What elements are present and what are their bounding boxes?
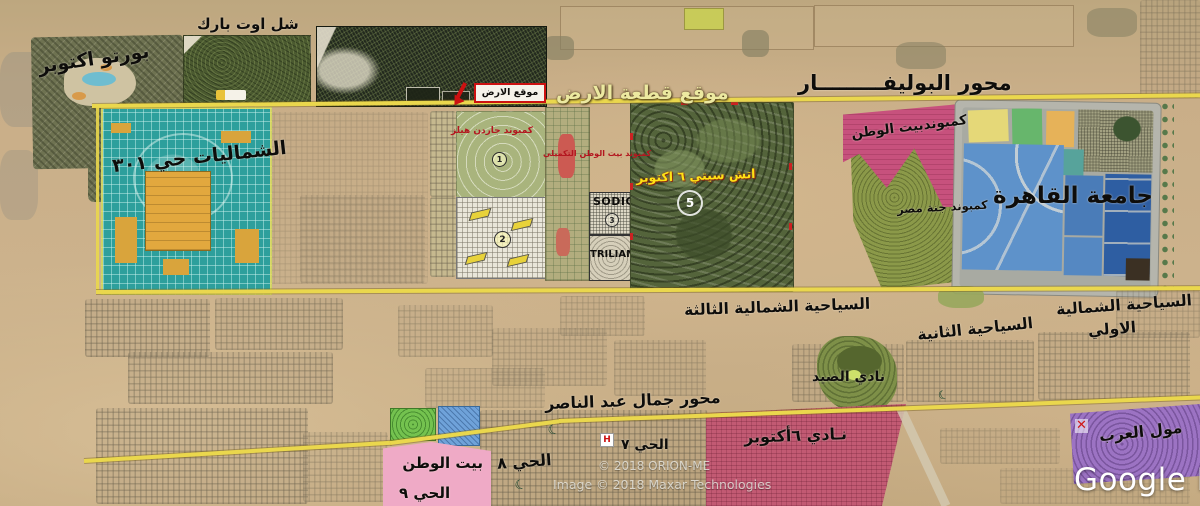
beit-watan-9-line2: الحي ٩ bbox=[399, 486, 450, 502]
hospital-icon: H bbox=[600, 433, 614, 447]
farm-plot bbox=[814, 5, 1074, 47]
plot-site-box-label: موقع الارض bbox=[482, 88, 538, 98]
desert-patch bbox=[1087, 8, 1137, 37]
region-watan-takmili bbox=[545, 107, 590, 281]
label-chillout: شل اوت بارك bbox=[197, 17, 299, 33]
road-band-left bbox=[96, 106, 99, 292]
urban-texture bbox=[398, 305, 493, 357]
region-shamaliyat bbox=[101, 107, 272, 295]
shamaliyat-parcel bbox=[163, 259, 189, 275]
desert-patch bbox=[544, 36, 574, 60]
desert-patch bbox=[896, 42, 946, 69]
label-cairo-university: جامعة القاهرة bbox=[993, 184, 1153, 208]
compound-strip bbox=[430, 197, 456, 277]
label-garden-hills: كمبوند جاردن هيلز bbox=[451, 127, 533, 136]
watermark-maxar: Image © 2018 Maxar Technologies bbox=[553, 477, 771, 492]
red-parcel bbox=[556, 228, 570, 256]
university-parcel-blue-bottom bbox=[1064, 237, 1103, 276]
urban-texture bbox=[1038, 332, 1190, 400]
label-plot-banner: موقع قطعة الارض bbox=[556, 84, 729, 104]
university-parcel-orange bbox=[1046, 111, 1075, 147]
shamaliyat-parcel bbox=[111, 123, 131, 133]
region-chillout-park bbox=[183, 35, 311, 104]
label-tourist-north-3: السياحية الشمالية الثالثة bbox=[684, 296, 871, 319]
urban-texture bbox=[300, 195, 425, 283]
red-tick bbox=[630, 183, 633, 190]
label-tourist-north-1-line2: الاولي bbox=[1087, 319, 1136, 339]
red-tick bbox=[789, 223, 792, 230]
hospital-icon-letter: H bbox=[603, 436, 611, 445]
yellow-parcel bbox=[465, 252, 488, 265]
red-tick bbox=[630, 233, 633, 240]
red-tick bbox=[630, 133, 633, 140]
shamaliyat-parcel bbox=[115, 217, 137, 263]
garden-hills-number: 1 bbox=[492, 152, 507, 167]
region-h-city bbox=[630, 102, 794, 292]
university-parcel-yellow bbox=[968, 109, 1009, 142]
white-compound-number-text: 2 bbox=[499, 235, 505, 245]
label-district-8: الحي ٨ bbox=[496, 452, 552, 473]
university-parcel-brown bbox=[1126, 258, 1150, 280]
label-district-7: الحي ٧ bbox=[621, 438, 669, 453]
label-october-club: نـادي ٦أكتوبر bbox=[744, 426, 848, 446]
sodic-label: SODIC bbox=[593, 196, 634, 208]
farm-plot-green bbox=[684, 8, 724, 30]
yellow-parcel bbox=[469, 208, 492, 221]
yellow-parcel bbox=[511, 218, 534, 231]
tree-row bbox=[1160, 100, 1174, 290]
label-boulevard: محور البوليفـــــــــار bbox=[798, 72, 1012, 94]
label-watan-takmili: كمبوند بيت الوطن التكميلي bbox=[543, 150, 651, 158]
white-compound-number: 2 bbox=[494, 231, 511, 248]
plot-site-box: موقع الارض bbox=[474, 83, 546, 103]
urban-texture bbox=[215, 298, 343, 350]
chillout-logo bbox=[216, 90, 246, 100]
yellow-parcel bbox=[507, 254, 530, 267]
watermark-google: Google E bbox=[1074, 462, 1200, 498]
university-parcel-khaki bbox=[1077, 109, 1153, 172]
porto-building bbox=[72, 92, 86, 100]
label-hunting-club: نادي الصيد bbox=[812, 370, 885, 385]
mall-x-marker: ✕ bbox=[1075, 419, 1088, 433]
h-city-number-text: 5 bbox=[686, 196, 694, 210]
region-triliam: TRILIAM bbox=[589, 235, 633, 281]
region-sodic: SODIC 3 bbox=[589, 192, 633, 235]
shamaliyat-parcel bbox=[235, 229, 259, 263]
urban-texture bbox=[614, 340, 706, 396]
region-blue-box bbox=[438, 406, 480, 446]
sodic-number-text: 3 bbox=[609, 216, 614, 225]
urban-texture bbox=[128, 352, 333, 404]
porto-lagoon bbox=[82, 72, 116, 86]
shamaliyat-center-parcel bbox=[145, 171, 211, 251]
satellite-map[interactable]: 1 2 SODIC 3 TRILIAM 5 bbox=[0, 0, 1200, 506]
region-beit-watan-9: بيت الوطن الحي ٩ bbox=[383, 442, 491, 506]
beit-watan-9-line1: بيت الوطن bbox=[402, 456, 483, 472]
h-city-number: 5 bbox=[677, 190, 703, 216]
watermark-orion: © 2018 ORION-ME bbox=[598, 459, 710, 473]
urban-texture bbox=[940, 428, 1060, 464]
red-tick bbox=[789, 163, 792, 170]
garden-hills-number-text: 1 bbox=[497, 155, 503, 164]
urban-texture bbox=[560, 296, 645, 336]
sodic-number: 3 bbox=[605, 213, 619, 227]
urban-texture bbox=[85, 299, 210, 357]
desert-patch bbox=[742, 30, 769, 57]
urban-texture bbox=[1140, 0, 1200, 98]
red-tick bbox=[731, 102, 738, 105]
urban-texture bbox=[906, 340, 1034, 402]
compound-strip bbox=[430, 111, 456, 197]
urban-texture bbox=[425, 368, 545, 408]
